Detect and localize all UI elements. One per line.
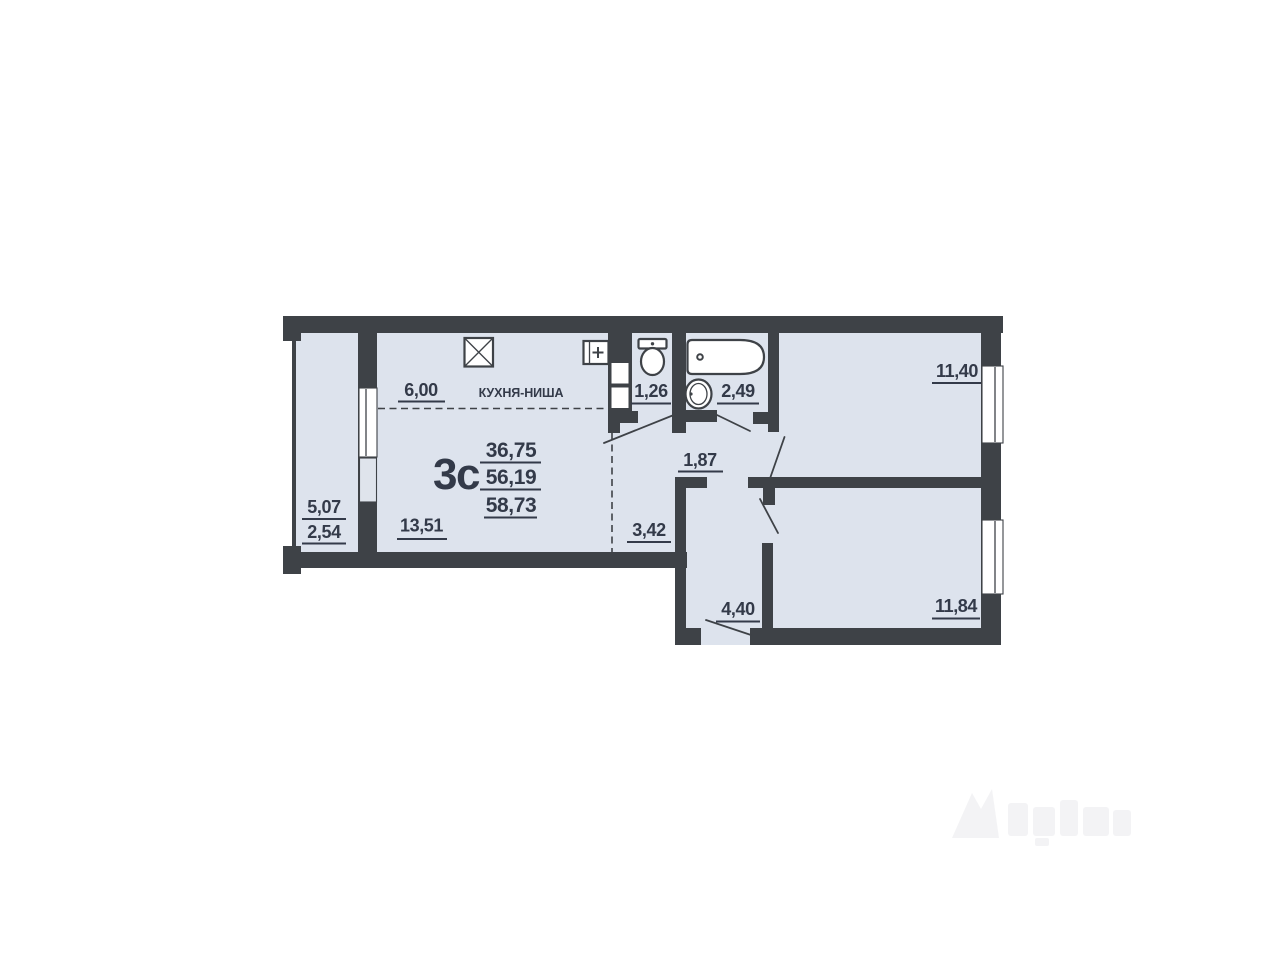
living-room-area-label: 13,51 [400,516,443,536]
balcony-left-wall [292,333,296,556]
entrance-hall-area-label: 4,40 [721,599,755,619]
mid-horizontal-wall-right [748,477,1001,488]
kitchen-width-label: 6,00 [404,380,438,400]
bath-bottom-wall-left [686,410,717,422]
apartment-type-label: 3с [433,450,480,499]
balcony-area-reduced-label: 2,54 [307,522,341,542]
electrical-panel-icon [584,341,609,364]
corridor-divider-wall [675,477,686,645]
bedroom-bottom-window [982,520,1003,594]
mid-horizontal-wall-left [675,477,707,488]
bathtub-icon [688,340,765,374]
bedroom-bottom-area-label: 11,84 [935,596,977,616]
balcony-window [359,388,377,502]
floorplan-page: 6,00 КУХНЯ-НИША 3с 36,75 56,19 58,73 13,… [0,0,1280,957]
toilet-icon [639,339,667,375]
balcony-area-full-label: 5,07 [307,497,341,517]
hall-area-label: 1,87 [683,450,717,470]
sink-icon [686,380,712,409]
bathroom-area-label: 2,49 [721,381,755,401]
wc-area-label: 1,26 [634,381,668,401]
wc-bath-divider-wall [672,333,686,433]
bottom-wall-left [283,552,687,568]
wc-bottom-wall [618,411,638,423]
bottom-wall-right-b [750,628,1001,645]
bedroom-top-window [982,366,1003,443]
stove-icon [465,338,494,367]
watermark [952,789,1131,846]
floorplan-drawing: 6,00 КУХНЯ-НИША 3с 36,75 56,19 58,73 13,… [0,0,1280,957]
living-area-value: 36,75 [486,439,537,462]
kitchen-niche-label: КУХНЯ-НИША [479,386,564,400]
bedroom2-door-jamb [763,488,775,505]
total-area-value: 56,19 [486,466,537,489]
corridor-area-label: 3,42 [632,520,666,540]
bath-bedroom-divider-wall [768,333,779,432]
bedroom-top-area-label: 11,40 [936,361,978,381]
balcony-door-panel [360,458,377,502]
bedroom2-corridor-wall [762,543,773,628]
top-wall [283,316,1003,333]
total-area-with-balcony-value: 58,73 [486,494,537,517]
